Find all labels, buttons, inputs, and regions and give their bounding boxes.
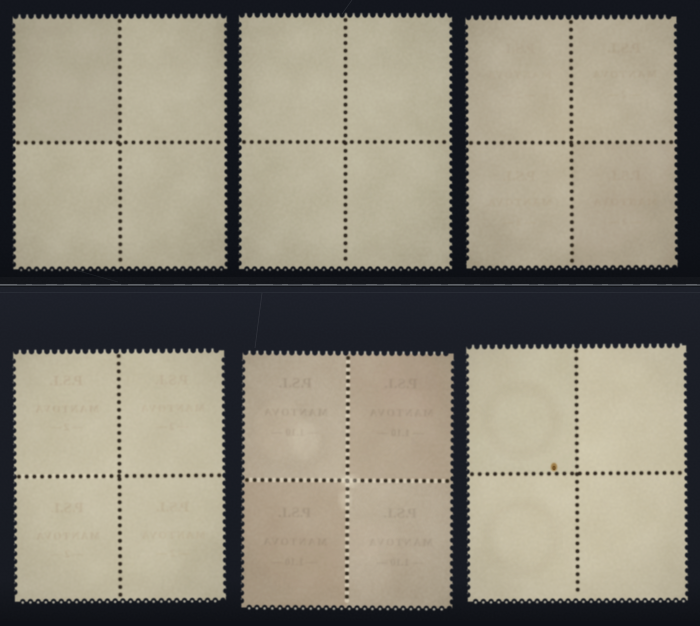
svg-text:— 2 —: — 2 —	[49, 421, 84, 433]
svg-text:— 2 —: — 2 —	[502, 217, 537, 229]
svg-text:P.S.I.: P.S.I.	[502, 169, 536, 185]
svg-text:P.S.I.: P.S.I.	[607, 41, 641, 57]
svg-text:P.S.I.: P.S.I.	[49, 373, 83, 389]
svg-text:MANTOVA: MANTOVA	[591, 70, 656, 81]
svg-text:— 2 —: — 2 —	[154, 421, 189, 433]
svg-text:P.S.I.: P.S.I.	[501, 41, 535, 57]
svg-text:MANTOVA: MANTOVA	[486, 70, 551, 81]
svg-text:MANTOVA: MANTOVA	[34, 404, 99, 415]
svg-text:P.S.I.: P.S.I.	[608, 168, 642, 184]
svg-text:— 2 —: — 2 —	[155, 548, 190, 560]
svg-text:MANTOVA: MANTOVA	[486, 198, 551, 209]
svg-text:— 2 —: — 2 —	[607, 216, 642, 228]
svg-text:MANTOVA: MANTOVA	[140, 530, 205, 541]
svg-text:— 2 —: — 2 —	[501, 89, 536, 101]
svg-text:— 2 —: — 2 —	[607, 89, 642, 101]
svg-text:— 2 —: — 2 —	[50, 548, 85, 560]
svg-text:P.S.I.: P.S.I.	[50, 500, 84, 516]
svg-text:MANTOVA: MANTOVA	[592, 197, 657, 208]
svg-text:MANTOVA: MANTOVA	[35, 531, 100, 542]
svg-text:P.S.I.: P.S.I.	[156, 500, 190, 516]
svg-text:P.S.I.: P.S.I.	[155, 373, 189, 389]
svg-text:MANTOVA: MANTOVA	[139, 403, 204, 414]
